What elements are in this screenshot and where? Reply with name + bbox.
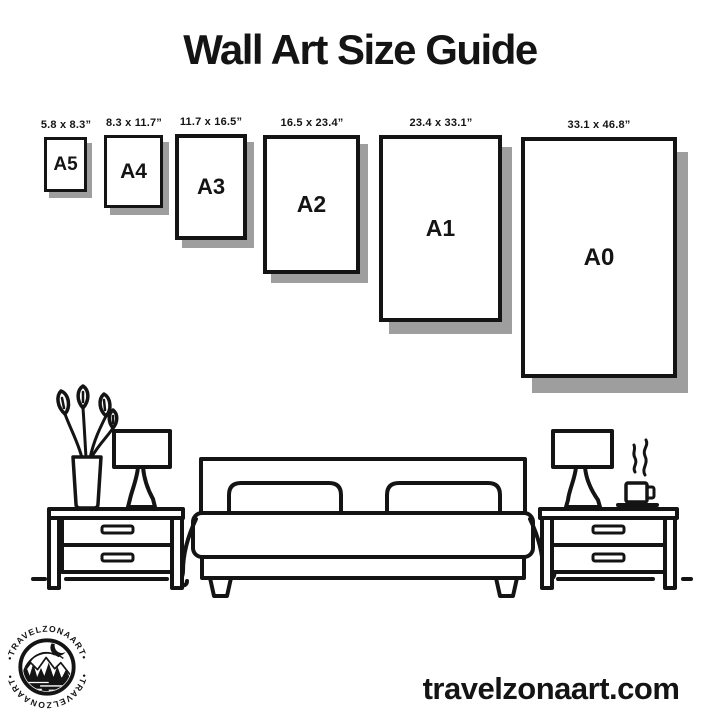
size-frame-a3: A3 [175,134,247,240]
left-nightstand-icon [49,509,183,588]
size-name-a1: A1 [426,215,455,242]
size-frame-a2: A2 [263,135,360,274]
bedroom-illustration [20,380,700,615]
page-title: Wall Art Size Guide [0,26,720,74]
size-dimensions-label-a2: 16.5 x 23.4” [252,117,372,129]
size-frame-a1: A1 [379,135,502,322]
size-frame-a0: A0 [521,137,677,378]
size-frame-a5: A5 [44,137,87,192]
right-nightstand-icon [540,509,677,588]
potted-plant-icon [58,386,117,508]
left-table-lamp-icon [114,431,170,507]
size-name-a0: A0 [584,244,615,272]
size-dimensions-label-a0: 33.1 x 46.8” [539,119,659,131]
size-frame-a4: A4 [104,135,163,208]
website-url: travelzonaart.com [401,671,701,707]
size-name-a5: A5 [53,154,77,176]
size-dimensions-label-a1: 23.4 x 33.1” [381,117,501,129]
brand-logo: •TRAVELZONAART• •TRAVELZONAART• [4,624,90,710]
double-bed-icon [180,459,554,596]
size-name-a4: A4 [120,160,147,184]
size-name-a3: A3 [197,174,225,200]
size-name-a2: A2 [297,191,326,218]
right-table-lamp-icon [553,431,612,507]
coffee-cup-icon [618,440,657,505]
